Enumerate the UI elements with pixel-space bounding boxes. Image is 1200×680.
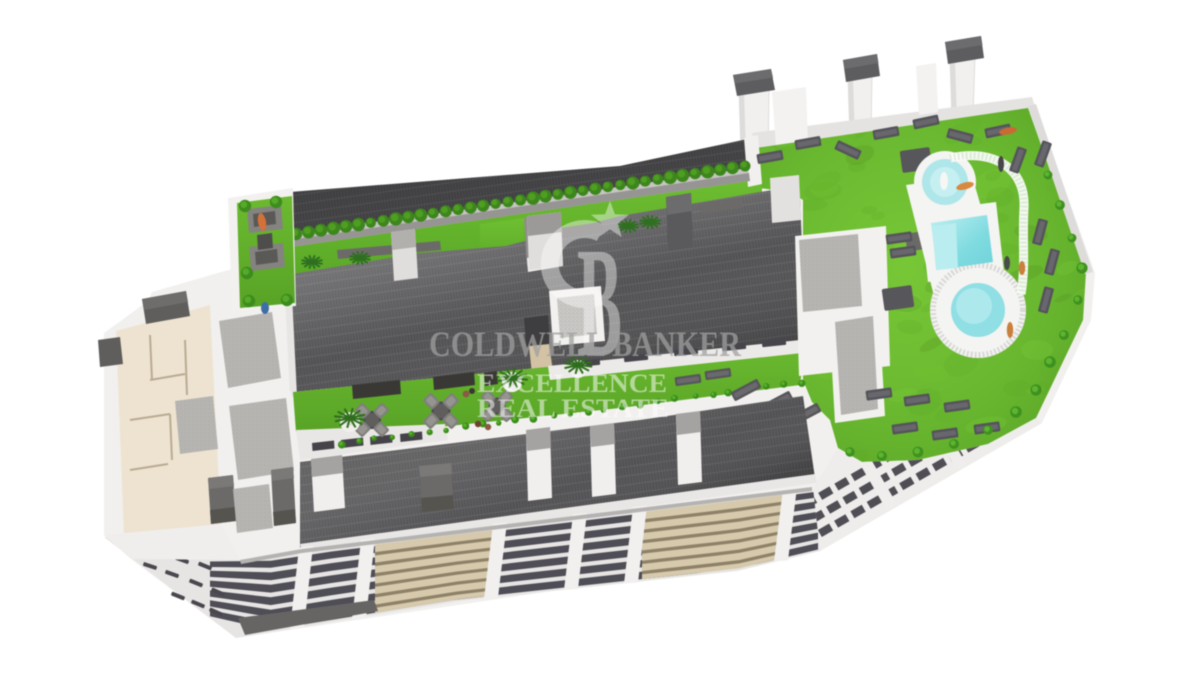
svg-text:COLDWELL BANKER: COLDWELL BANKER [429,324,742,364]
svg-text:REAL ESTATE: REAL ESTATE [477,394,669,423]
